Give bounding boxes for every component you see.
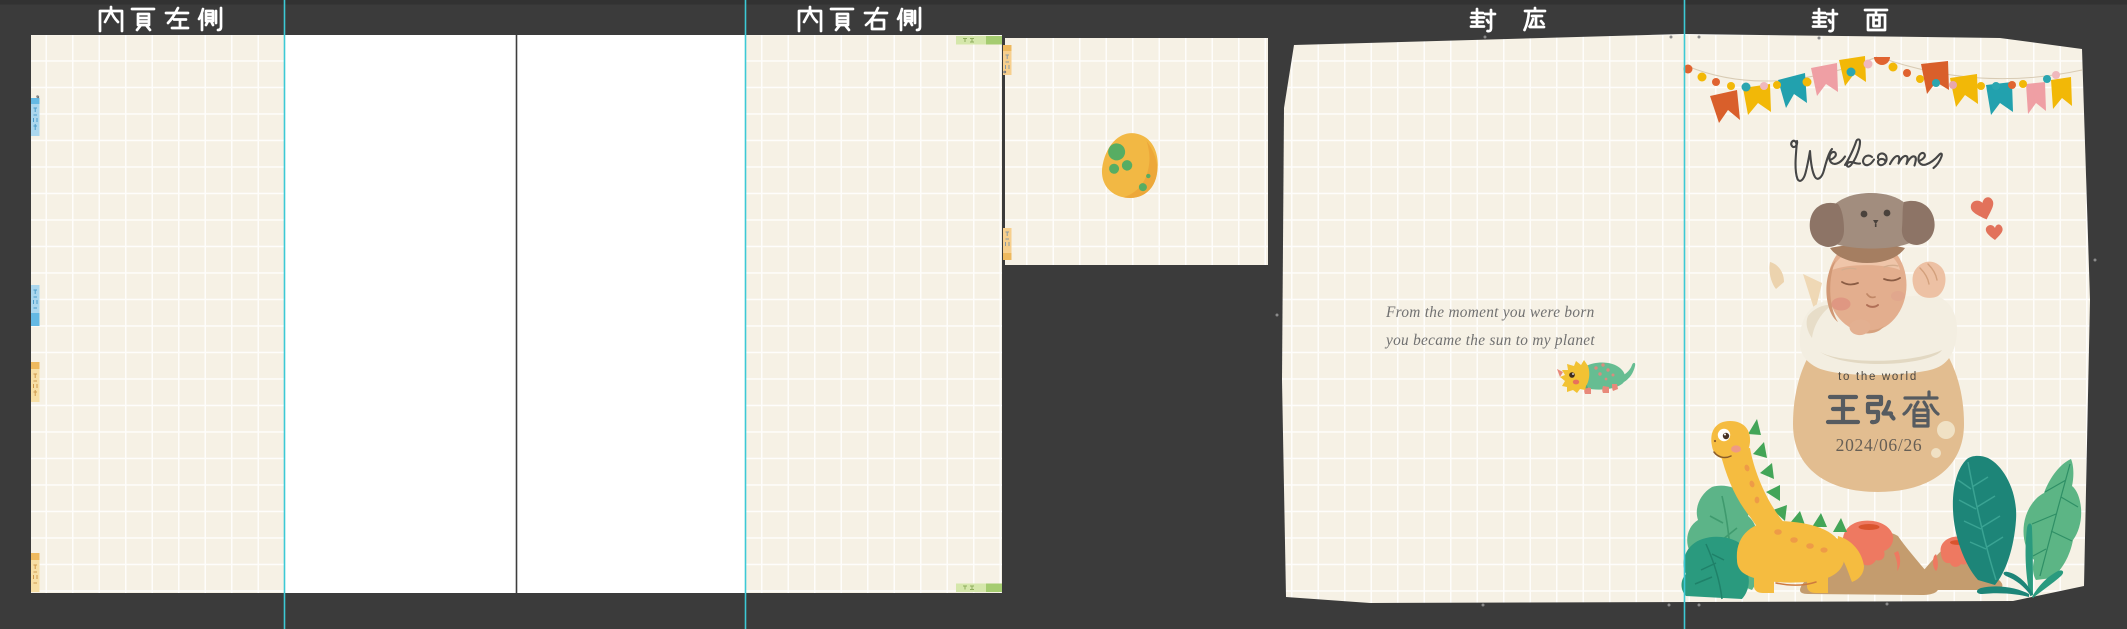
svg-text:2024/06/26: 2024/06/26 [1836, 435, 1923, 455]
svg-text:to the world: to the world [1838, 371, 1918, 383]
svg-text:you became the sun to my plane: you became the sun to my planet [1384, 332, 1595, 349]
svg-text:From the moment you were born: From the moment you were born [1385, 304, 1595, 321]
